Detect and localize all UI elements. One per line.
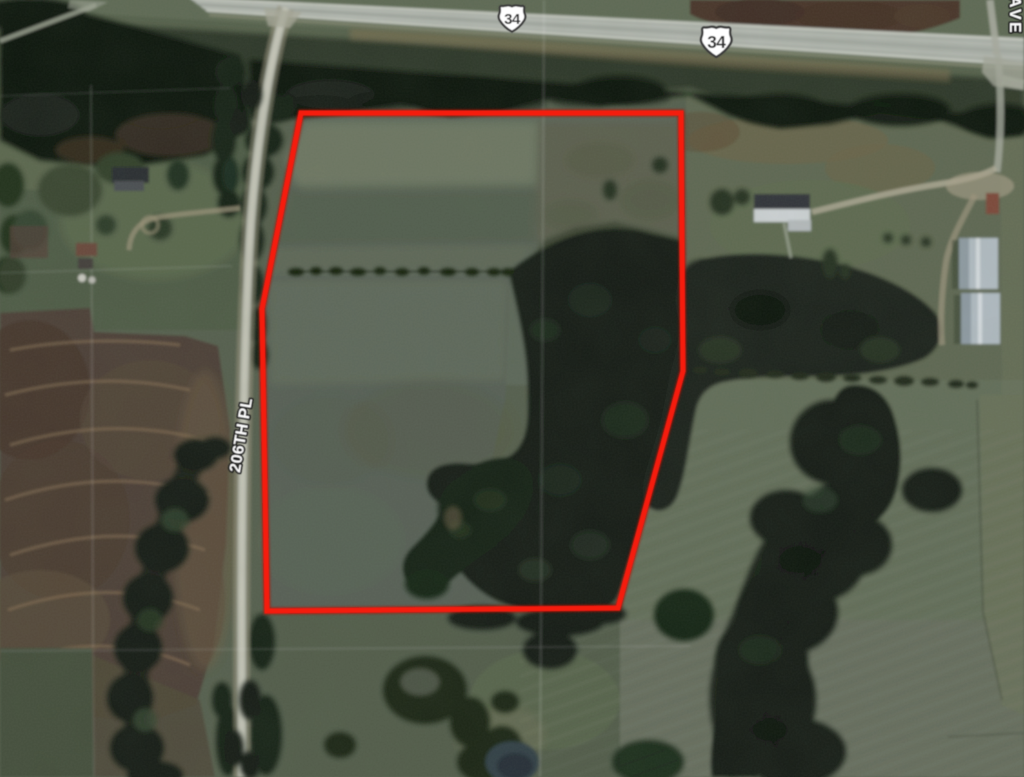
svg-text:34: 34 bbox=[707, 32, 726, 52]
svg-text:34: 34 bbox=[504, 11, 521, 28]
svg-text:AVE: AVE bbox=[1006, 0, 1023, 35]
